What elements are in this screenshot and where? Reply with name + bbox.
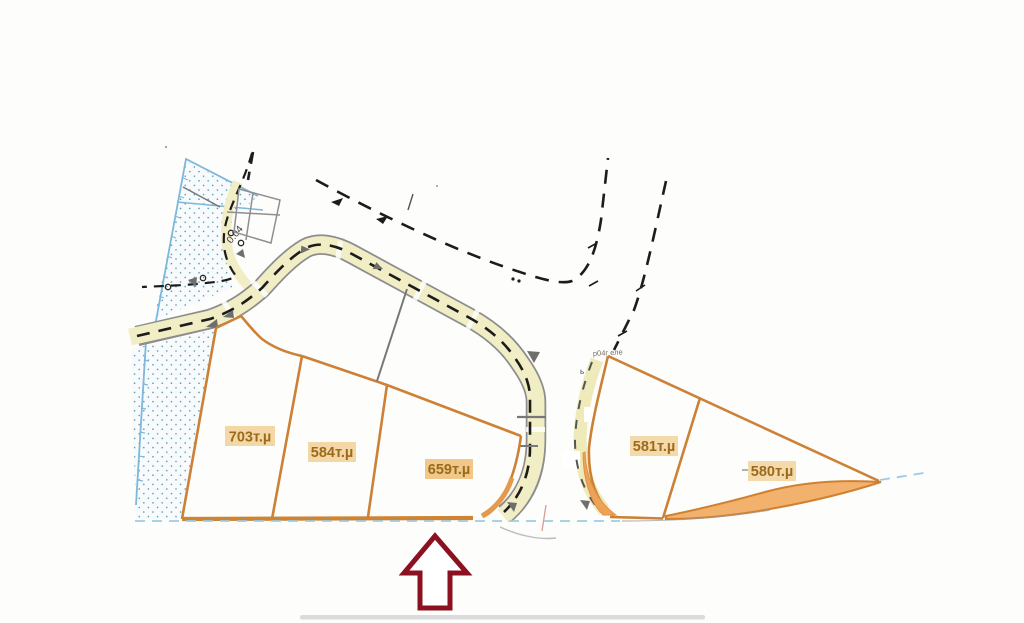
svg-text:р04г еле: р04г еле (593, 347, 623, 358)
svg-text:580т.µ: 580т.µ (751, 464, 793, 480)
svg-text:659т.µ: 659т.µ (428, 462, 470, 478)
svg-text:ь: ь (580, 367, 584, 376)
svg-text:581т.µ: 581т.µ (633, 439, 675, 455)
svg-text:703т.µ: 703т.µ (229, 430, 271, 446)
svg-text:584т.µ: 584т.µ (311, 445, 353, 461)
